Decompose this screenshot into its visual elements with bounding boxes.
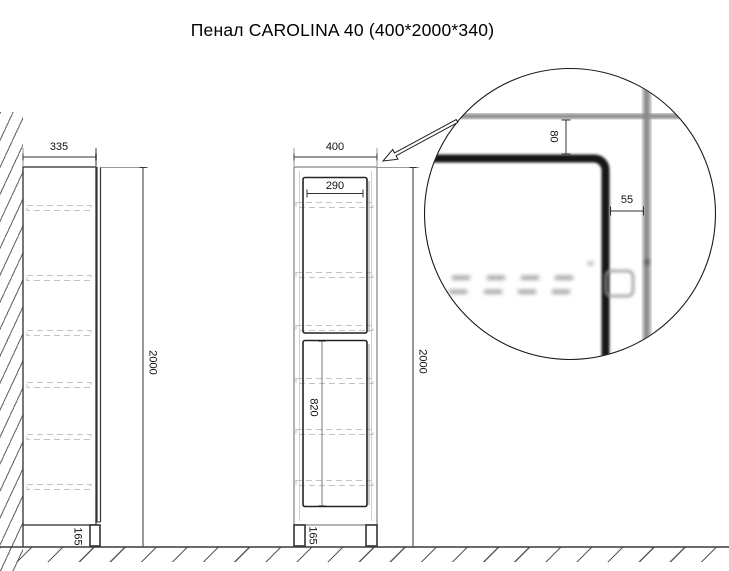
front-height-dim-label: 2000 [416, 342, 429, 382]
side-leg [90, 525, 100, 546]
side-height-dim-label: 2000 [146, 343, 159, 383]
lower-door-height-dim-label: 820 [307, 388, 320, 428]
front-leg-left [294, 525, 305, 546]
front-view [294, 148, 419, 547]
side-plinth-dim-label: 165 [71, 517, 84, 557]
detail-carcass-top-edge [420, 114, 720, 119]
detail-carcass-side-edge [643, 70, 651, 362]
door-width-dim-label: 290 [315, 180, 355, 193]
detail-side-reveal-dim-label: 55 [607, 194, 647, 207]
detail-top-reveal-dim-label: 80 [547, 117, 560, 157]
drawing-canvas [0, 0, 729, 571]
side-view [23, 148, 148, 547]
drawing-title: Пенал CAROLINA 40 (400*2000*340) [160, 20, 525, 41]
detail-view [420, 69, 720, 363]
side-depth-dim-label: 335 [39, 141, 79, 154]
side-height-dimension [101, 168, 149, 548]
side-door-edge [97, 167, 101, 522]
front-width-dim-label: 400 [315, 141, 355, 154]
technical-drawing: Пенал CAROLINA 40 (400*2000*340) 335 200… [0, 0, 729, 571]
detail-circle [425, 69, 716, 360]
front-leg-right [366, 525, 377, 546]
front-height-dimension [377, 168, 419, 548]
front-plinth-dim-label: 165 [306, 516, 319, 556]
side-carcass [23, 167, 96, 525]
front-carcass [294, 167, 377, 525]
